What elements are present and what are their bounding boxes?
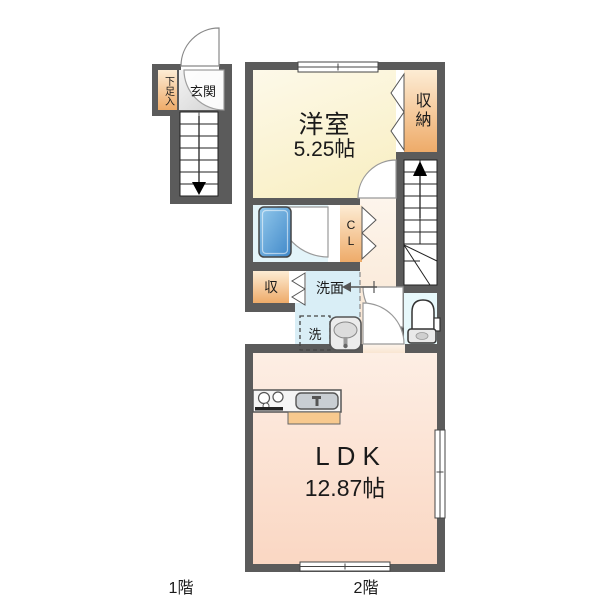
storage-label: 収 (253, 271, 289, 303)
shoe-box-label: 下足入 (158, 70, 177, 111)
floor1-label: 1階 (151, 574, 211, 598)
kitchen-counter (253, 390, 341, 424)
western-room-size: 5.25帖 (253, 133, 396, 163)
kitchen-sink-icon (296, 393, 338, 409)
stove-icon (255, 392, 283, 411)
fixtures-overlay (0, 0, 600, 600)
cl-folding-door-icon (362, 207, 376, 259)
washroom-label: 洗面 (301, 278, 359, 298)
stairs-1f (180, 112, 218, 196)
window-bottom-icon (300, 562, 390, 571)
bathtub-icon (259, 207, 291, 257)
closet-label: 収納 (404, 70, 437, 152)
laundry-label: 洗 (300, 316, 330, 350)
ldk-size: 12.87帖 (253, 469, 437, 503)
kitchen-counter-strip (288, 412, 340, 424)
bedroom-door-swing-arc-icon (358, 160, 396, 198)
genkan-label: 玄関 (183, 70, 223, 110)
washbasin-icon (330, 317, 361, 350)
cl-closet-label: CL (340, 205, 362, 262)
entrance-door-swing-arc-icon (181, 28, 219, 66)
window-top-icon (298, 62, 378, 72)
ldk-label: LDK (259, 441, 443, 472)
floor-plan-canvas: 下足入 玄関 洋室 5.25帖 収納 CL 収 洗面 洗 LDK 12.87帖 … (0, 0, 600, 600)
toilet-icon (408, 300, 440, 343)
stairs-2f (404, 160, 437, 285)
floor2-label: 2階 (336, 574, 396, 598)
